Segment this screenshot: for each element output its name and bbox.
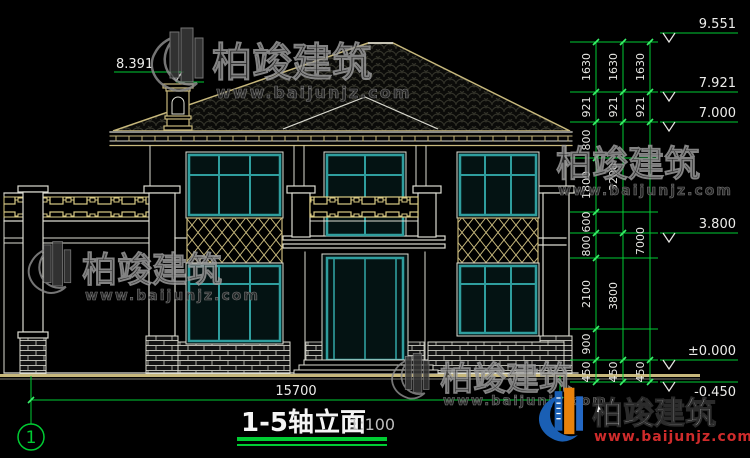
right-corner-pier — [538, 186, 574, 336]
title-underline — [237, 437, 387, 441]
dim-label: 800 — [580, 236, 593, 257]
watermark-url: www.baijunjz.com — [85, 288, 260, 304]
site-logo-brand: 柏竣建筑 — [592, 396, 716, 432]
elevation-value: 3.800 — [699, 217, 736, 232]
eave-fascia-band — [110, 131, 572, 146]
elevation-value: 9.551 — [699, 17, 736, 32]
garden-post-brick-base — [20, 338, 46, 374]
dim-label: 1630 — [634, 53, 647, 81]
dim-label: 1630 — [580, 53, 593, 81]
watermark-brand: 柏竣建筑 — [440, 359, 572, 398]
elevation-drawing-canvas: 1630 921 800 1800 600 800 2100 900 450 1… — [0, 0, 750, 458]
watermark-brand: 柏竣建筑 — [82, 250, 222, 291]
elevation-value: 7.921 — [699, 76, 736, 91]
site-logo-url: www.baijunjz.com — [594, 429, 750, 445]
left-brick-wainscot — [178, 342, 290, 374]
balcony-fretwork-railing — [310, 197, 418, 217]
dim-label: 450 — [634, 362, 647, 383]
window-right-2f — [457, 152, 539, 218]
balcony-post-left-cap — [287, 186, 315, 193]
elevation-value: ±0.000 — [688, 344, 736, 359]
dimension-value: 15700 — [275, 384, 316, 399]
left-pier-brick-base — [146, 336, 178, 374]
dim-label: 921 — [607, 97, 620, 118]
balcony-post-right-cap — [413, 186, 441, 193]
watermark-url: www.baijunjz.com — [216, 83, 411, 102]
cad-elevation-screenshot: 1630 921 800 1800 600 800 2100 900 450 1… — [0, 0, 750, 458]
entrance-door — [322, 254, 408, 361]
dim-label: 450 — [580, 362, 593, 383]
dim-label: 900 — [580, 334, 593, 355]
watermark-url: www.baijunjz.com — [443, 394, 608, 409]
dim-label: 1630 — [607, 53, 620, 81]
axis-number: 1 — [26, 428, 37, 448]
dim-label: 921 — [580, 97, 593, 118]
drawing-title: 1-5轴立面 — [241, 407, 366, 438]
balcony-post-right — [418, 193, 436, 237]
watermark-url: www.baijunjz.com — [558, 183, 733, 199]
watermark-brand: 柏竣建筑 — [212, 40, 372, 86]
window-left-2f — [186, 152, 283, 218]
elevation-value: 7.000 — [699, 106, 736, 121]
balcony-door-2f — [324, 152, 406, 236]
watermark-brand: 柏竣建筑 — [556, 144, 700, 185]
drawing-scale: 1:100 — [349, 415, 395, 434]
elevation-value: 8.391 — [116, 57, 153, 72]
window-right-1f — [457, 263, 539, 336]
dim-label: 2100 — [580, 280, 593, 308]
dim-label: 600 — [580, 212, 593, 233]
dim-label: 450 — [607, 362, 620, 383]
title-underline — [237, 444, 387, 446]
lattice-railing-right — [458, 218, 538, 263]
balcony-post-left — [292, 193, 310, 237]
dim-label: 7000 — [634, 227, 647, 255]
dim-label: 921 — [634, 97, 647, 118]
dim-label: 3800 — [607, 282, 620, 310]
